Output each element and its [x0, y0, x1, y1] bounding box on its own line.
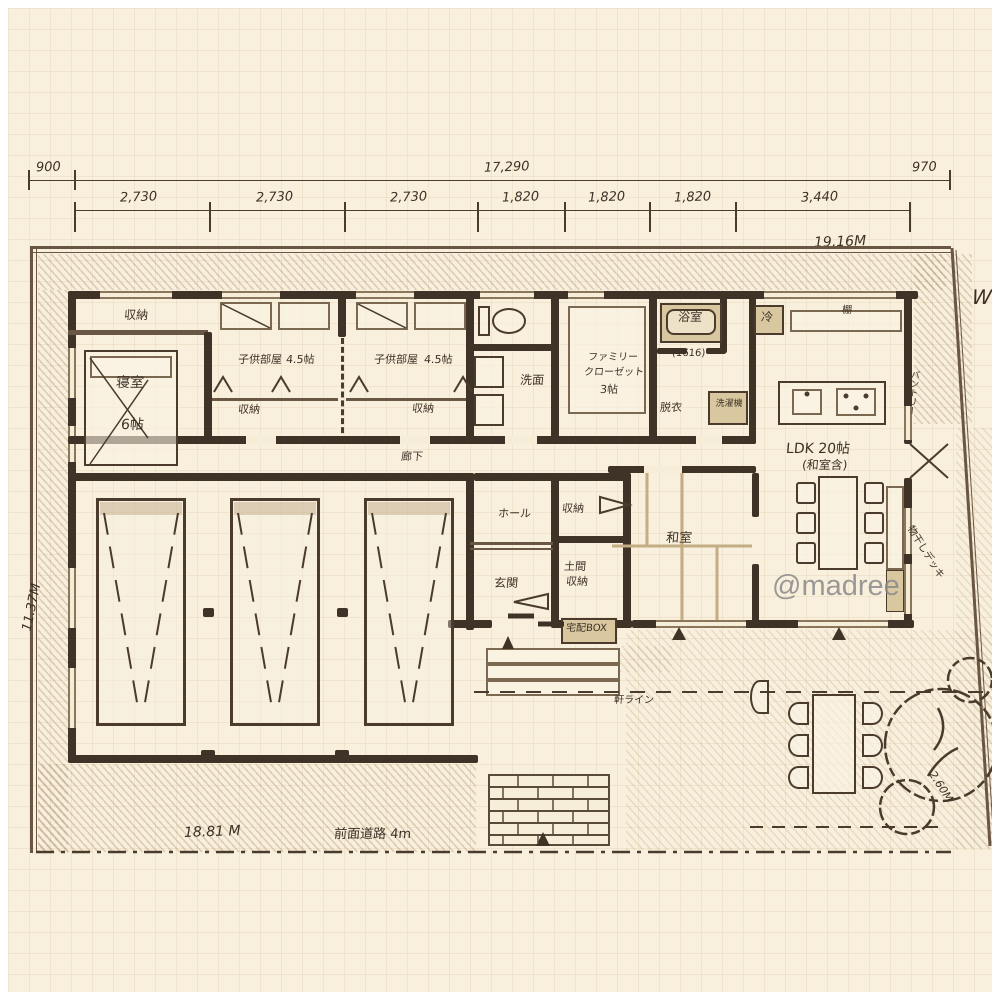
- kids1-closet-label: 収納: [237, 404, 260, 417]
- wall-wash-fc: [551, 291, 559, 444]
- kids1-size-label: 4.5帖: [285, 354, 315, 367]
- floor-plan-sheet: 900 17,290 970 2,730 2,730 2,730 1,820 1…: [0, 0, 1000, 1000]
- dim-tick: [649, 202, 651, 232]
- entrance-door-leaf: [514, 594, 548, 609]
- bedroom-closet-label: 収納: [123, 309, 148, 323]
- window-east-3: [904, 564, 912, 614]
- wall-bedroom-kids1: [204, 332, 212, 444]
- dim-seg-5: 1,820: [588, 189, 626, 205]
- dim-tick: [949, 170, 951, 190]
- dim-tick: [74, 170, 76, 190]
- washitsu-label: 和室: [665, 532, 692, 547]
- yard-hatch-right: [914, 254, 972, 424]
- bath-size-label: (1616): [671, 348, 705, 360]
- garden-chair: [750, 680, 769, 714]
- approach-brick-path: [488, 774, 610, 846]
- dim-line-total: [29, 180, 951, 181]
- compass-w-label: W: [971, 286, 993, 309]
- window-north-5: [568, 291, 604, 299]
- terrace-chair: [788, 766, 809, 789]
- dim-900: 900: [36, 160, 61, 176]
- wall-storage-doma: [551, 536, 631, 543]
- kids2-closet-box-2: [414, 302, 466, 330]
- dining-chair: [796, 482, 816, 504]
- window-ldk-south-2: [798, 620, 888, 628]
- door-gap-washitsu: [644, 466, 682, 473]
- hall-label: ホール: [497, 508, 531, 521]
- family-closet-size-label: 3帖: [599, 384, 618, 397]
- terrace-chair: [862, 766, 883, 789]
- bath-label: 浴室: [677, 311, 702, 325]
- dim-seg-7: 3,440: [801, 189, 839, 205]
- dim-tick: [28, 170, 30, 190]
- porch-side-hatch: [620, 646, 672, 672]
- wall-storage-west: [551, 473, 559, 628]
- east-wall-counter: [886, 486, 904, 570]
- door-gap-dressing: [696, 436, 722, 444]
- dim-line-segments: [75, 210, 910, 211]
- dining-table: [818, 476, 858, 570]
- dim-tick: [344, 202, 346, 232]
- entrance-step-1: [486, 648, 620, 664]
- window-west-4: [68, 668, 76, 728]
- bedroom-label: 寝室: [115, 375, 144, 391]
- kids2-size-label: 4.5帖: [423, 354, 453, 367]
- yard-hatch-top: [38, 254, 946, 290]
- door-gap-kids1: [246, 436, 276, 444]
- fridge-label: 冷: [760, 311, 773, 325]
- dining-chair: [864, 482, 884, 504]
- dim-tick: [74, 202, 76, 232]
- kids2-closet-label: 収納: [411, 403, 434, 416]
- dim-tick: [477, 202, 479, 232]
- dining-chair: [864, 512, 884, 534]
- site-frontage-label: 18.81 M: [184, 823, 241, 841]
- wall-washitsu-north: [608, 466, 756, 473]
- kitchen-stove: [836, 388, 876, 416]
- washroom-label: 洗面: [519, 374, 544, 388]
- window-west-3: [68, 568, 76, 628]
- wall-kids2-toilet: [466, 291, 474, 444]
- window-north-4: [480, 291, 534, 299]
- deck-door-swing: [910, 444, 948, 478]
- wall-entrance-south-w: [448, 620, 492, 628]
- wall-toilet-south: [466, 344, 559, 351]
- parking-bay-1: [96, 498, 186, 726]
- wall-storage-east: [623, 473, 631, 628]
- dining-chair: [864, 542, 884, 564]
- terrace-table: [812, 694, 856, 794]
- kids2-closet-front: [346, 398, 466, 401]
- dim-tick: [735, 202, 737, 232]
- kitchen-sink: [792, 389, 822, 415]
- washer-label: 洗濯機: [711, 399, 748, 409]
- dim-970: 970: [912, 160, 937, 176]
- kids2-closet-box-1: [356, 302, 408, 330]
- dim-seg-4: 1,820: [502, 189, 540, 205]
- entrance-step-3: [486, 680, 620, 696]
- door-gap-kids2: [400, 436, 430, 444]
- parking-bay-1-shade: [100, 502, 182, 515]
- toilet-bowl: [492, 308, 526, 334]
- window-north-3: [356, 291, 414, 299]
- dressing-label: 脱衣: [659, 402, 682, 415]
- dim-seg-6: 1,820: [674, 189, 712, 205]
- wall-fc-bath: [649, 291, 657, 444]
- dim-seg-1: 2,730: [120, 189, 158, 205]
- terrace-chair: [788, 702, 809, 725]
- kids1-closet-box-1: [220, 302, 272, 330]
- toilet-tank: [478, 306, 490, 336]
- dining-chair: [796, 542, 816, 564]
- doma-label-2: 収納: [565, 576, 588, 589]
- kids2-label: 子供部屋: [373, 354, 418, 367]
- door-gap-washroom: [505, 436, 537, 444]
- wall-bedroom-closet: [68, 330, 208, 335]
- ldk-label: LDK 20帖: [785, 441, 850, 457]
- doma-label-1: 土間: [563, 561, 586, 574]
- family-closet-label-2: クローゼット: [583, 367, 644, 379]
- window-north-6: [764, 291, 896, 299]
- window-ldk-south-1: [656, 620, 746, 628]
- wall-corridor-south: [68, 473, 474, 481]
- window-west-2: [68, 426, 76, 462]
- site-boundary-left-inner: [36, 248, 37, 852]
- terrace-chair: [862, 734, 883, 757]
- dim-tick: [209, 202, 211, 232]
- dim-17290: 17,290: [484, 159, 530, 176]
- wall-washitsu-east-2: [752, 564, 759, 624]
- kids1-label: 子供部屋: [237, 354, 282, 367]
- delivery-box-label: 宅配BOX: [565, 623, 607, 635]
- wall-washitsu-east-1: [752, 473, 759, 517]
- garage-pillar-3: [201, 750, 215, 760]
- dining-chair: [796, 512, 816, 534]
- entrance-label: 玄関: [493, 577, 518, 591]
- hall-step-line-1: [470, 542, 553, 545]
- site-boundary-left: [30, 246, 33, 853]
- family-closet-label-1: ファミリー: [587, 352, 638, 364]
- wall-kids-partition-top: [338, 291, 346, 337]
- parking-bay-2: [230, 498, 320, 726]
- entrance-step-2: [486, 664, 620, 680]
- hall-step-line-2: [470, 548, 553, 550]
- terrace-chair: [862, 702, 883, 725]
- garage-pillar-4: [335, 750, 349, 760]
- terrace-hatch: [626, 630, 994, 850]
- site-boundary-top-inner: [30, 252, 951, 253]
- dim-tick: [909, 202, 911, 232]
- parking-bay-3-shade: [368, 502, 450, 515]
- window-north-2: [222, 291, 280, 299]
- bedroom-size-label: 6帖: [120, 417, 144, 433]
- kids1-closet-front: [212, 398, 338, 401]
- eave-line-label: 軒ライン: [613, 695, 654, 707]
- dim-tick: [564, 202, 566, 232]
- garage-pillar-1: [203, 608, 214, 617]
- window-north-1: [100, 291, 172, 299]
- wall-kids-partition-dashed: [341, 338, 344, 442]
- garage-pillar-2: [337, 608, 348, 617]
- terrace-chair: [788, 734, 809, 757]
- dim-seg-3: 2,730: [390, 189, 428, 205]
- kids1-closet-box-2: [278, 302, 330, 330]
- site-boundary-top: [30, 246, 951, 249]
- road-label: 前面道路 4m: [333, 828, 411, 843]
- wash-cabinet-1: [474, 356, 504, 388]
- window-west-1: [68, 348, 76, 398]
- watermark: @madree: [772, 570, 900, 603]
- dim-seg-2: 2,730: [256, 189, 294, 205]
- hall-storage-label: 収納: [561, 503, 584, 516]
- parking-bay-2-shade: [234, 502, 316, 515]
- wall-entrance-west: [466, 473, 474, 630]
- corridor-label: 廊下: [400, 451, 423, 464]
- shelf-label: 棚: [841, 305, 852, 317]
- wall-garage-south: [68, 755, 478, 763]
- wash-cabinet-2: [474, 394, 504, 426]
- parking-bay-3: [364, 498, 454, 726]
- ldk-note-label: (和室含): [801, 459, 848, 473]
